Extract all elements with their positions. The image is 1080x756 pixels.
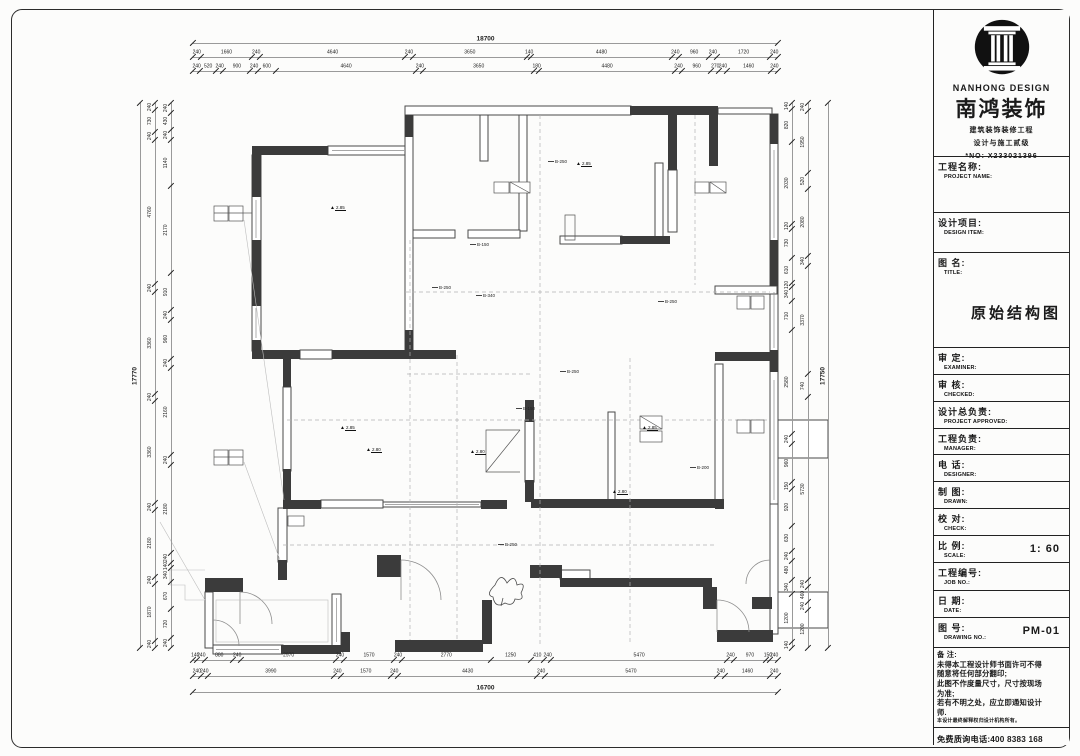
date-label-en: DATE:	[934, 607, 1069, 614]
drawn-label-en: DRAWN:	[934, 498, 1069, 505]
drawing-title-label-cn: 图 名:	[934, 253, 1069, 269]
check-label-en: CHECK:	[934, 525, 1069, 532]
window-lines	[216, 150, 774, 650]
manager-label-en: MANAGER:	[934, 445, 1069, 452]
drawn-row: 制 图: DRAWN:	[934, 481, 1069, 508]
manager-label-cn: 工程负责:	[934, 429, 1069, 445]
project-approved-label-cn: 设计总负责:	[934, 402, 1069, 418]
note-line: 未得本工程设计师书面许可不得	[937, 660, 1066, 670]
drawing-no-value: PM-01	[1023, 625, 1060, 637]
notes-label: 备 注:	[937, 650, 1066, 660]
date-label-cn: 日 期:	[934, 591, 1069, 607]
job-no-row: 工程编号: JOB NO.:	[934, 562, 1069, 590]
drawing-title-section: 图 名: TITLE: 原始结构图	[934, 252, 1069, 347]
project-approved-row: 设计总负责: PROJECT APPROVED:	[934, 401, 1069, 428]
note-line: 为准;	[937, 689, 1066, 699]
hotline: 免费质询电话:400 8383 168	[934, 727, 1069, 745]
note-line: 随意将任何部分翻印;	[937, 669, 1066, 679]
drawing-no-row: 图 号: DRAWING NO.: PM-01	[934, 617, 1069, 647]
brand-name-en: NANHONG DESIGN	[934, 83, 1069, 93]
project-name-section: 工程名称: PROJECT NAME:	[934, 156, 1069, 212]
check-label-cn: 校 对:	[934, 509, 1069, 525]
floor-plan	[0, 0, 1080, 756]
scale-value: 1: 60	[1030, 543, 1060, 555]
drawing-title-value: 原始结构图	[934, 276, 1069, 323]
company-logo-block: NANHONG DESIGN 南鸿装饰 建筑装饰装修工程 设计与施工贰级 *NO…	[934, 10, 1069, 156]
examiner-label-en: EXAMINER:	[934, 364, 1069, 371]
note-line: 若有不明之处，应立即通知设计	[937, 698, 1066, 708]
checked-row: 审 核: CHECKED:	[934, 374, 1069, 401]
walls-structural	[205, 106, 778, 654]
drawn-label-cn: 制 图:	[934, 482, 1069, 498]
leader-lines	[160, 220, 328, 642]
brand-sub-line2: 设计与施工贰级	[934, 139, 1069, 149]
note-line: 此图不作度量尺寸，尺寸按现场	[937, 679, 1066, 689]
checked-label-cn: 审 核:	[934, 375, 1069, 391]
job-no-label-en: JOB NO.:	[934, 579, 1069, 586]
design-item-label-en: DESIGN ITEM:	[934, 229, 1069, 236]
examiner-label-cn: 审 定:	[934, 348, 1069, 364]
job-no-label-cn: 工程编号:	[934, 563, 1069, 579]
design-item-label-cn: 设计项目:	[934, 213, 1069, 229]
designer-phone-row: 电 话: DESIGNER:	[934, 454, 1069, 481]
drawing-sheet: 1870024016602404640240365014044802409602…	[0, 0, 1080, 756]
manager-row: 工程负责: MANAGER:	[934, 428, 1069, 455]
brand-name-cn: 南鸿装饰	[934, 93, 1069, 123]
plant-scribble	[489, 577, 523, 606]
note-line: 师.	[937, 708, 1066, 718]
examiner-row: 审 定: EXAMINER:	[934, 347, 1069, 374]
title-block: NANHONG DESIGN 南鸿装饰 建筑装饰装修工程 设计与施工贰级 *NO…	[933, 10, 1069, 745]
check-row: 校 对: CHECK:	[934, 508, 1069, 535]
project-approved-label-en: PROJECT APPROVED:	[934, 418, 1069, 425]
designer-phone-label-cn: 电 话:	[934, 455, 1069, 471]
designer-phone-label-en: DESIGNER:	[934, 471, 1069, 478]
brand-sub-line1: 建筑装饰装修工程	[934, 126, 1069, 136]
column-logo-icon	[973, 18, 1031, 76]
project-name-label-cn: 工程名称:	[934, 157, 1069, 173]
design-item-section: 设计项目: DESIGN ITEM:	[934, 212, 1069, 252]
project-name-label-en: PROJECT NAME:	[934, 173, 1069, 180]
date-row: 日 期: DATE:	[934, 590, 1069, 617]
notes-section: 备 注: 未得本工程设计师书面许可不得 随意将任何部分翻印; 此图不作度量尺寸，…	[934, 647, 1069, 727]
scale-row: 比 例: SCALE: 1: 60	[934, 535, 1069, 562]
note-line-fine-print: 本设计最终解释权归设计机构所有。	[937, 718, 1066, 725]
checked-label-en: CHECKED:	[934, 391, 1069, 398]
drawing-title-label-en: TITLE:	[934, 269, 1069, 276]
